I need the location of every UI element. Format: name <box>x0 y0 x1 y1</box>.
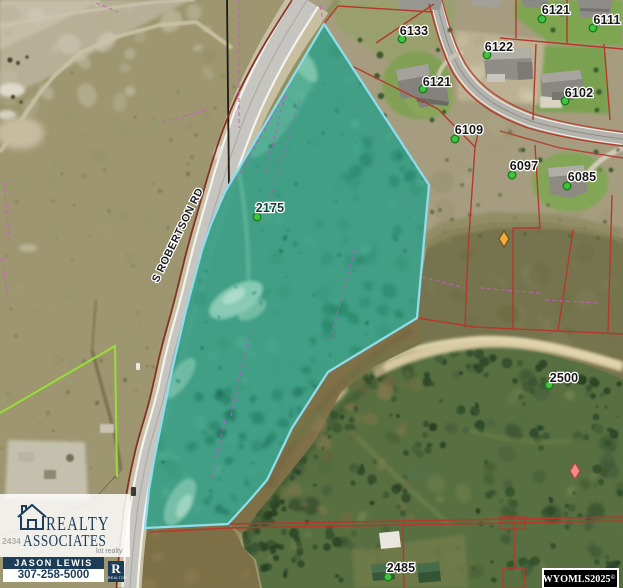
svg-text:6121: 6121 <box>423 75 452 89</box>
svg-text:6109: 6109 <box>455 123 484 137</box>
svg-text:2500: 2500 <box>550 371 579 385</box>
svg-text:6102: 6102 <box>565 86 594 100</box>
svg-text:2175: 2175 <box>256 201 285 215</box>
svg-text:2485: 2485 <box>387 561 416 575</box>
svg-text:6111: 6111 <box>593 13 620 27</box>
svg-text:6097: 6097 <box>510 159 539 173</box>
svg-text:WYOMLS2025©: WYOMLS2025© <box>543 574 616 585</box>
svg-text:6133: 6133 <box>400 24 429 38</box>
svg-text:6122: 6122 <box>485 40 514 54</box>
svg-text:6121: 6121 <box>542 3 571 17</box>
svg-text:6085: 6085 <box>568 170 597 184</box>
